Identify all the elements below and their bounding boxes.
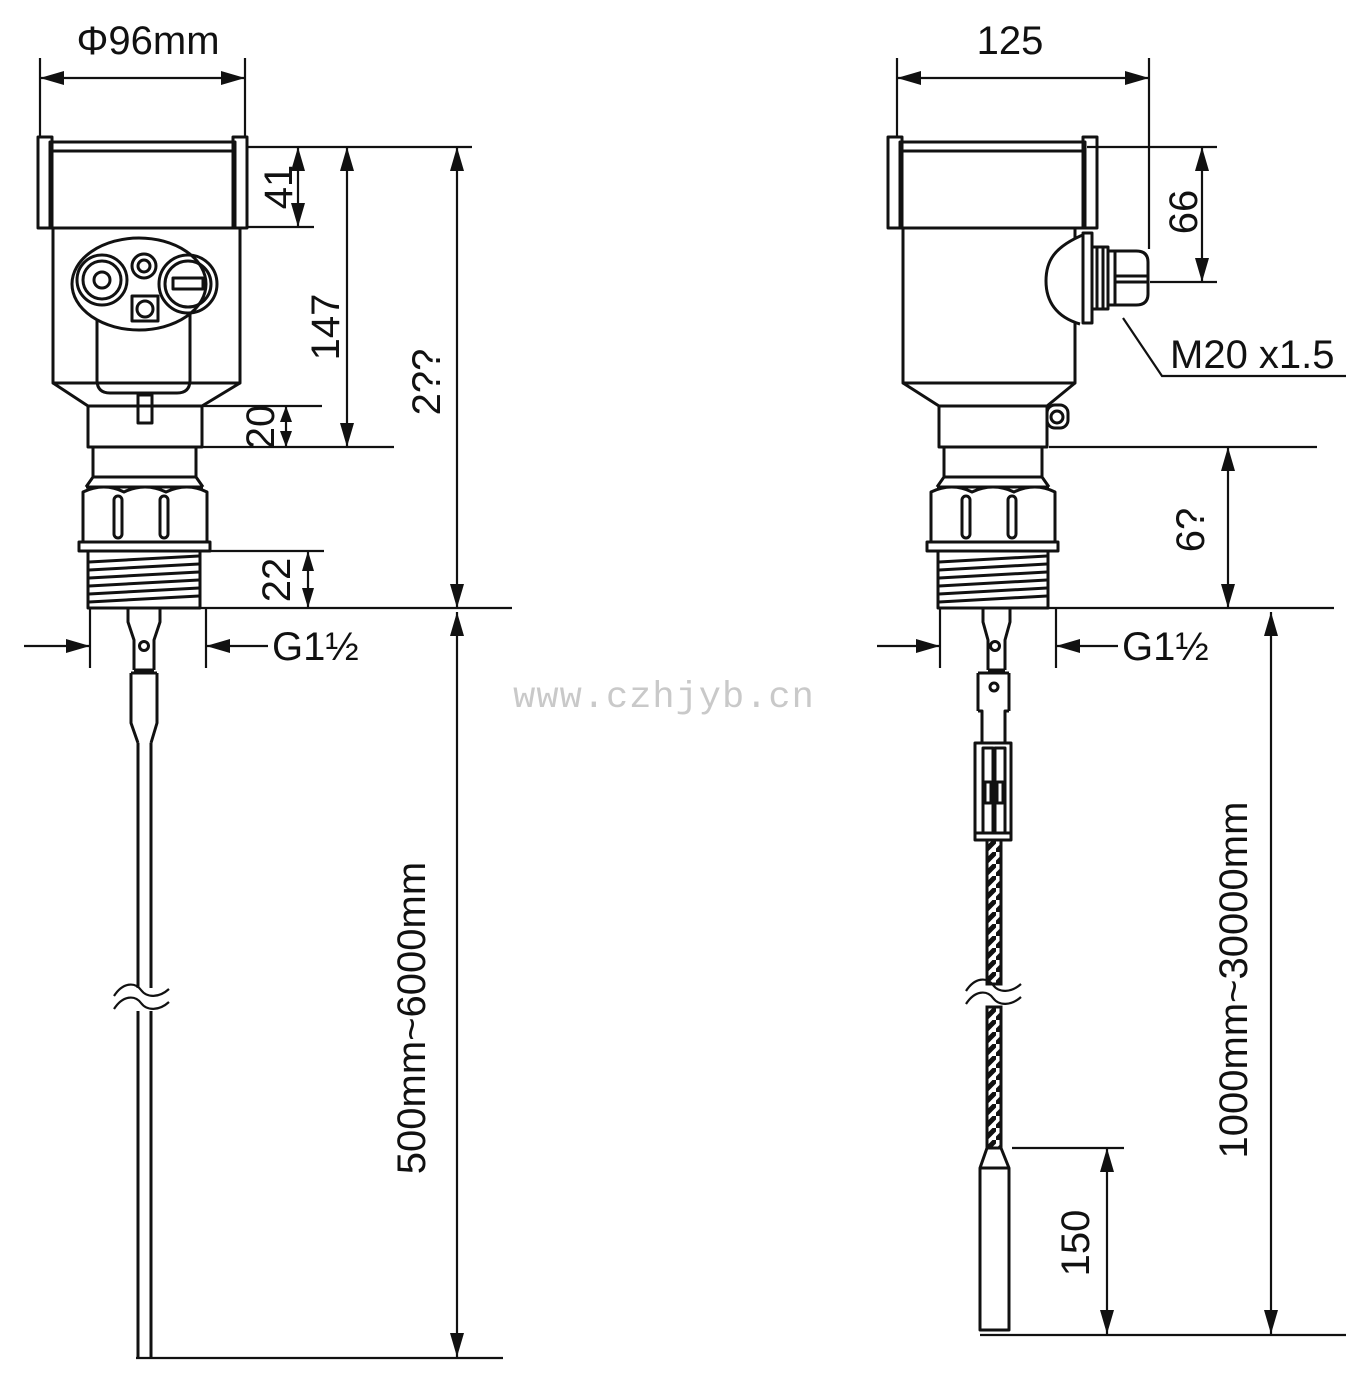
display-face (72, 238, 217, 393)
cable-clamp (975, 743, 1011, 840)
dim-probe-range: 500mm~6000mm (390, 612, 464, 1358)
dim-label-diameter: Φ96mm (76, 19, 219, 63)
dim-thread-spec-g112: G1½ (24, 608, 359, 669)
dim-label-probe-range: 500mm~6000mm (390, 862, 434, 1174)
dim-label-overall: 2?? (405, 349, 449, 416)
hex-nut-side (931, 487, 1055, 542)
watermark-text: www.czhjyb.cn (513, 677, 815, 719)
dim-adapter-height: 6? (1049, 447, 1317, 608)
dim-weight-150: 150 (1012, 1148, 1124, 1335)
dim-label-m20: M20 x1.5 (1170, 333, 1335, 377)
dim-label-22: 22 (255, 558, 299, 603)
hex-nut (83, 487, 207, 542)
callout-m20: M20 x1.5 (1123, 318, 1346, 377)
cable-probe (966, 608, 1021, 1330)
neck-section-side (903, 383, 1075, 487)
counterweight (980, 1148, 1009, 1330)
steel-cable-lower (987, 1007, 1001, 1148)
dim-width-125: 125 (897, 19, 1149, 249)
dim-label-66: 66 (1162, 190, 1206, 235)
dim-label-125: 125 (977, 19, 1044, 63)
dim-thread-spec-g112-right: G1½ (877, 608, 1209, 669)
rod-probe (114, 608, 169, 1358)
process-thread (88, 551, 200, 608)
dim-label-147: 147 (304, 294, 348, 361)
dim-label-41: 41 (257, 165, 301, 210)
housing-cap-side (888, 137, 1097, 228)
neck-section (53, 383, 240, 487)
dim-label-adapter: 6? (1169, 508, 1213, 553)
housing-cap (38, 137, 247, 228)
dim-neck-20: 20 (202, 405, 322, 450)
left-view-rod-version (38, 137, 247, 1358)
level-transmitter-dimension-drawing: www.czhjyb.cn (0, 0, 1346, 1386)
housing-body-side (903, 228, 1075, 383)
dim-label-g112-right: G1½ (1122, 625, 1209, 669)
left-view-dimensions: Φ96mm 41 147 2?? 20 (24, 19, 512, 1358)
break-symbol (114, 985, 169, 1009)
dim-label-g112: G1½ (272, 625, 359, 669)
dim-cable-range: 1000mm~30000mm (1212, 612, 1278, 1335)
process-thread-side (938, 551, 1048, 608)
right-view-cable-version (888, 137, 1148, 1330)
right-view-dimensions: 125 66 M20 x1.5 6? (877, 19, 1346, 1335)
dim-label-150: 150 (1054, 1210, 1098, 1277)
steel-cable-upper (987, 840, 1001, 984)
dim-cap-height-41: 41 (247, 147, 314, 227)
dim-label-cable-range: 1000mm~30000mm (1212, 802, 1256, 1159)
dim-label-20: 20 (239, 405, 283, 450)
cable-gland (1046, 233, 1148, 324)
drawing-svg: www.czhjyb.cn (0, 0, 1346, 1386)
dim-thread-22: 22 (210, 551, 324, 608)
dim-diameter-96: Φ96mm (40, 19, 245, 137)
dim-overall-height: 2?? (405, 147, 464, 608)
